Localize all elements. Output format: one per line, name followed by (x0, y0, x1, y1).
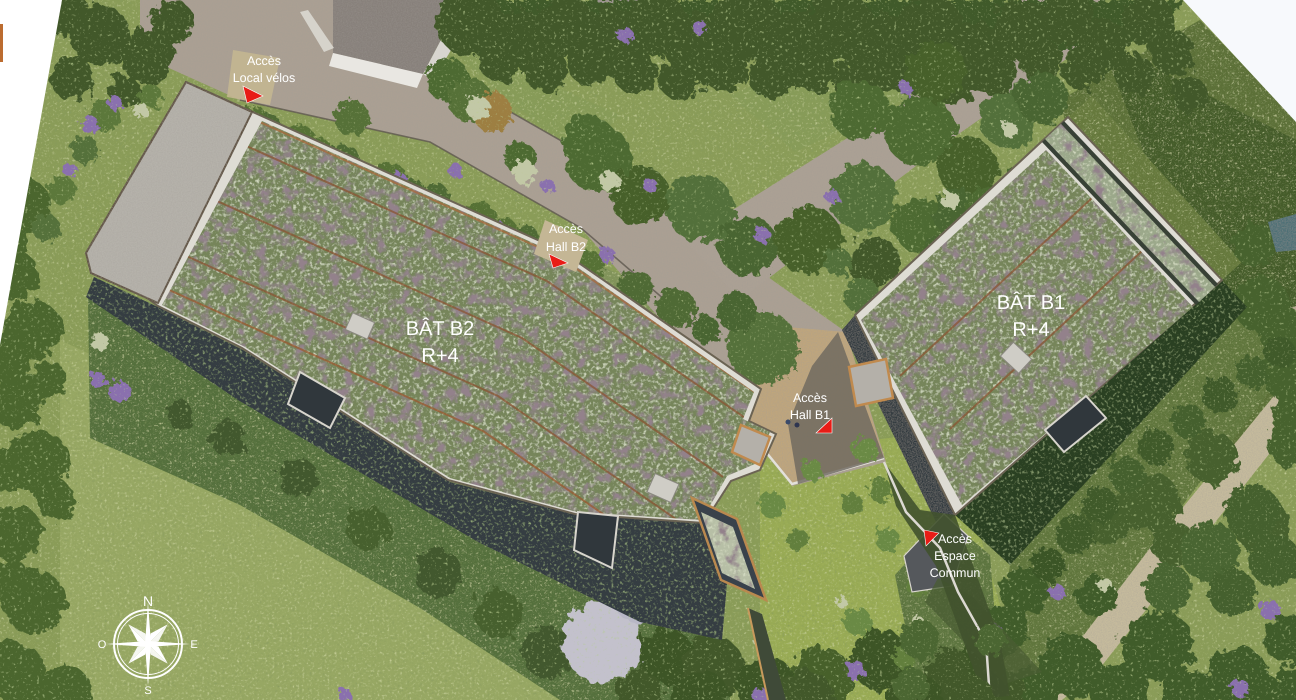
svg-text:R+4: R+4 (421, 345, 458, 367)
svg-text:Accès: Accès (793, 391, 827, 405)
svg-text:Hall B1: Hall B1 (790, 408, 830, 422)
svg-text:BÂT B1: BÂT B1 (997, 291, 1066, 314)
svg-text:Hall B2: Hall B2 (546, 240, 586, 254)
svg-text:Local vélos: Local vélos (233, 71, 296, 85)
svg-text:Commun: Commun (930, 566, 981, 580)
svg-text:BÂT B2: BÂT B2 (406, 317, 475, 340)
svg-text:Accès: Accès (549, 222, 583, 236)
svg-text:Accès: Accès (247, 54, 281, 68)
svg-text:N: N (143, 593, 153, 609)
svg-text:S: S (144, 685, 151, 697)
svg-text:E: E (190, 639, 197, 651)
svg-text:Accès: Accès (938, 532, 972, 546)
svg-text:Espace: Espace (934, 549, 976, 563)
svg-text:R+4: R+4 (1012, 319, 1049, 341)
svg-text:O: O (98, 639, 107, 651)
